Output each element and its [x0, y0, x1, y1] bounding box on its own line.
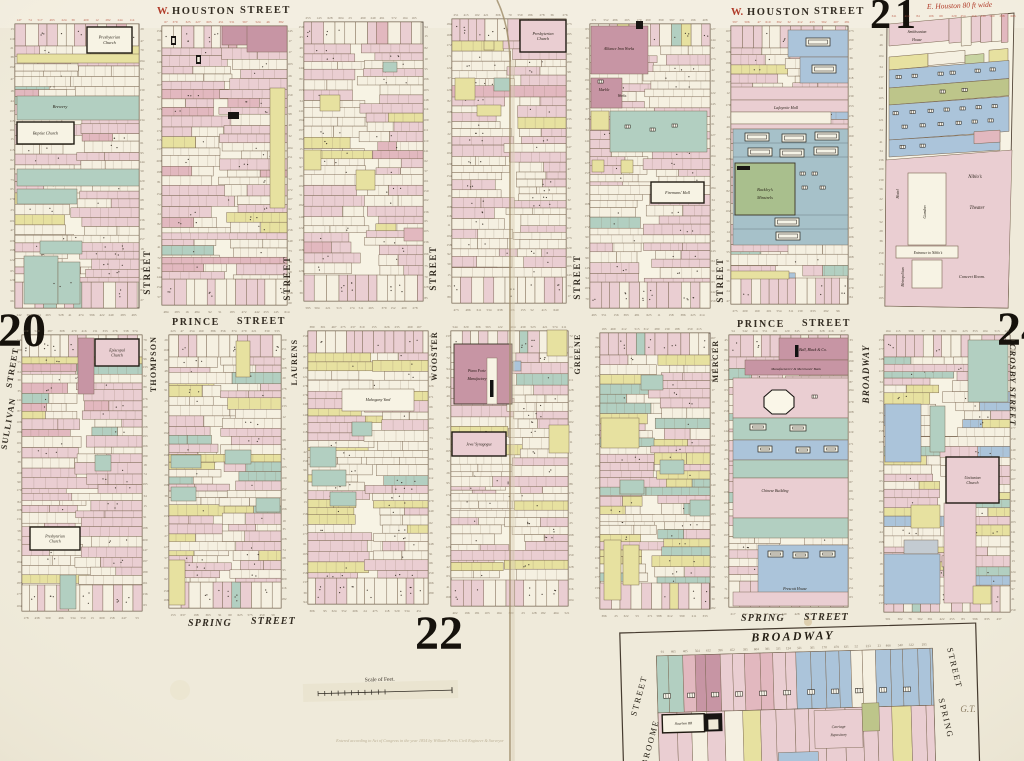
svg-text:189: 189 [429, 591, 434, 595]
svg-text:312: 312 [644, 327, 649, 331]
svg-text:21: 21 [870, 0, 920, 38]
svg-text:184: 184 [447, 22, 452, 26]
svg-text:91: 91 [661, 650, 665, 654]
svg-text:195: 195 [567, 32, 572, 36]
svg-text:198: 198 [194, 613, 199, 617]
svg-text:108: 108 [879, 440, 884, 444]
svg-text:187: 187 [446, 554, 451, 558]
svg-text:152: 152 [282, 487, 287, 491]
svg-text:143: 143 [567, 273, 572, 277]
svg-text:66: 66 [429, 561, 433, 565]
svg-text:106: 106 [429, 457, 434, 461]
svg-text:103: 103 [567, 41, 572, 45]
svg-text:106: 106 [10, 239, 15, 243]
svg-text:62: 62 [288, 207, 292, 211]
svg-text:41: 41 [879, 140, 883, 144]
svg-text:150: 150 [724, 409, 729, 413]
svg-text:68: 68 [164, 358, 168, 362]
svg-text:98: 98 [567, 70, 571, 74]
svg-text:635: 635 [985, 617, 990, 621]
svg-text:156: 156 [614, 313, 619, 317]
svg-text:55: 55 [726, 250, 730, 254]
svg-text:102: 102 [849, 267, 854, 271]
svg-text:181: 181 [475, 611, 480, 615]
svg-text:155: 155 [521, 308, 526, 312]
svg-text:152: 152 [303, 344, 308, 348]
svg-text:11: 11 [849, 143, 853, 147]
svg-text:35: 35 [17, 389, 21, 393]
svg-text:115: 115 [849, 546, 854, 550]
svg-text:78: 78 [595, 336, 599, 340]
svg-text:559: 559 [518, 13, 523, 17]
svg-text:253: 253 [264, 310, 269, 314]
svg-text:122: 122 [711, 91, 716, 95]
svg-text:111: 111 [569, 378, 574, 382]
svg-text:171: 171 [429, 395, 434, 399]
svg-text:39: 39 [303, 591, 307, 595]
svg-text:16: 16 [585, 87, 589, 91]
svg-text:159: 159 [1011, 437, 1016, 441]
svg-text:151: 151 [879, 593, 884, 597]
svg-text:197: 197 [10, 109, 15, 113]
svg-text:190: 190 [164, 453, 169, 457]
svg-text:32: 32 [787, 20, 791, 24]
svg-text:103: 103 [288, 62, 293, 66]
svg-text:143: 143 [711, 249, 716, 253]
svg-text:60: 60 [711, 452, 715, 456]
svg-text:84: 84 [849, 295, 853, 299]
svg-text:105: 105 [879, 96, 884, 100]
svg-text:168: 168 [299, 248, 304, 252]
svg-text:19: 19 [282, 519, 286, 523]
svg-text:118: 118 [585, 117, 590, 121]
svg-text:39: 39 [71, 18, 75, 22]
svg-text:102: 102 [299, 184, 304, 188]
svg-text:STREET: STREET [240, 5, 291, 16]
svg-text:76: 76 [908, 617, 912, 621]
svg-text:95: 95 [323, 609, 327, 613]
svg-text:501: 501 [886, 617, 891, 621]
svg-text:105: 105 [567, 264, 572, 268]
svg-text:135: 135 [567, 117, 572, 121]
svg-text:38: 38 [429, 344, 433, 348]
svg-text:36: 36 [849, 56, 853, 60]
svg-text:265: 265 [625, 18, 630, 22]
svg-text:528: 528 [59, 313, 64, 317]
svg-text:186: 186 [528, 13, 533, 17]
svg-text:195: 195 [595, 345, 600, 349]
svg-text:151: 151 [282, 347, 287, 351]
svg-text:74: 74 [28, 18, 32, 22]
svg-text:15: 15 [424, 34, 428, 38]
svg-text:BROADWAY: BROADWAY [750, 628, 835, 644]
svg-text:92: 92 [447, 252, 451, 256]
svg-text:475: 475 [373, 609, 378, 613]
svg-text:70: 70 [595, 414, 599, 418]
svg-text:130: 130 [665, 327, 670, 331]
svg-text:158: 158 [669, 313, 674, 317]
svg-text:85: 85 [849, 244, 853, 248]
svg-text:46: 46 [724, 448, 728, 452]
svg-text:55: 55 [569, 472, 573, 476]
svg-text:13: 13 [10, 27, 14, 31]
svg-text:68: 68 [282, 556, 286, 560]
svg-text:28: 28 [299, 174, 303, 178]
svg-text:21: 21 [17, 549, 21, 553]
svg-text:100: 100 [282, 338, 287, 342]
svg-text:68: 68 [140, 258, 144, 262]
svg-text:199: 199 [849, 359, 854, 363]
svg-text:11: 11 [585, 57, 589, 61]
svg-text:136: 136 [299, 238, 304, 242]
svg-text:108: 108 [282, 537, 287, 541]
svg-text:192: 192 [711, 358, 716, 362]
svg-text:421: 421 [484, 13, 489, 17]
svg-text:65: 65 [726, 200, 730, 204]
svg-text:158: 158 [288, 291, 293, 295]
svg-text:544: 544 [453, 325, 458, 329]
svg-text:Theater: Theater [970, 206, 985, 211]
svg-text:75: 75 [585, 67, 589, 71]
svg-text:139: 139 [798, 309, 803, 313]
svg-text:176: 176 [849, 114, 854, 118]
svg-text:117: 117 [567, 226, 572, 230]
svg-text:177: 177 [595, 575, 600, 579]
svg-text:542: 542 [743, 329, 748, 333]
svg-text:89: 89 [140, 207, 144, 211]
svg-text:76: 76 [711, 422, 715, 426]
svg-text:82: 82 [447, 99, 451, 103]
svg-text:614: 614 [285, 310, 290, 314]
svg-text:95: 95 [140, 151, 144, 155]
svg-text:120: 120 [447, 162, 452, 166]
svg-text:134: 134 [724, 358, 729, 362]
svg-text:94: 94 [424, 25, 428, 29]
svg-text:44: 44 [164, 410, 168, 414]
svg-text:552: 552 [604, 18, 609, 22]
svg-text:68: 68 [282, 438, 286, 442]
svg-text:85: 85 [164, 421, 168, 425]
svg-text:21: 21 [10, 46, 14, 50]
svg-text:141: 141 [1011, 530, 1016, 534]
svg-text:24: 24 [140, 77, 144, 81]
svg-text:65: 65 [303, 422, 307, 426]
svg-text:15: 15 [10, 137, 14, 141]
svg-text:486: 486 [466, 308, 471, 312]
svg-text:136: 136 [879, 158, 884, 162]
svg-text:132: 132 [1011, 366, 1016, 370]
svg-text:107: 107 [726, 29, 731, 33]
svg-text:83: 83 [961, 617, 965, 621]
svg-text:254: 254 [190, 329, 195, 333]
svg-text:Baptist Church: Baptist Church [33, 130, 58, 135]
svg-text:109: 109 [879, 167, 884, 171]
svg-text:Church: Church [103, 40, 115, 45]
svg-text:155: 155 [372, 325, 377, 329]
svg-text:178: 178 [282, 387, 287, 391]
svg-text:Entered according to Act of Co: Entered according to Act of Congress in … [335, 738, 504, 743]
svg-text:465: 465 [671, 649, 676, 653]
svg-text:320: 320 [464, 325, 469, 329]
svg-text:595: 595 [306, 306, 311, 310]
svg-text:216: 216 [829, 329, 834, 333]
svg-text:141: 141 [424, 149, 429, 153]
svg-text:34: 34 [585, 128, 589, 132]
svg-text:13: 13 [1011, 559, 1015, 563]
svg-text:597: 597 [733, 20, 738, 24]
svg-text:98: 98 [595, 385, 599, 389]
svg-text:48: 48 [164, 369, 168, 373]
svg-text:22: 22 [711, 208, 715, 212]
svg-text:452: 452 [743, 612, 748, 616]
svg-text:16: 16 [585, 36, 589, 40]
svg-text:198: 198 [1011, 395, 1016, 399]
svg-text:524: 524 [256, 20, 261, 24]
svg-text:176: 176 [569, 491, 574, 495]
svg-text:73: 73 [429, 436, 433, 440]
svg-text:173: 173 [567, 236, 572, 240]
svg-text:137: 137 [879, 601, 884, 605]
svg-text:147: 147 [17, 18, 22, 22]
svg-text:466: 466 [886, 643, 891, 647]
svg-text:34: 34 [303, 479, 307, 483]
svg-text:237: 237 [351, 325, 356, 329]
svg-text:119: 119 [1011, 499, 1016, 503]
svg-text:42: 42 [726, 220, 730, 224]
svg-text:256: 256 [972, 14, 977, 18]
svg-text:564: 564 [695, 649, 700, 653]
svg-text:81: 81 [1011, 540, 1015, 544]
svg-text:35: 35 [446, 404, 450, 408]
svg-text:Carriage: Carriage [831, 725, 845, 729]
svg-text:393: 393 [624, 313, 629, 317]
svg-text:17: 17 [569, 501, 573, 505]
svg-text:Garden: Garden [922, 205, 927, 219]
svg-text:133: 133 [595, 586, 600, 590]
svg-text:150: 150 [879, 107, 884, 111]
svg-text:158: 158 [879, 429, 884, 433]
svg-text:105: 105 [429, 426, 434, 430]
svg-text:93: 93 [299, 156, 303, 160]
svg-text:195: 195 [879, 296, 884, 300]
svg-text:181: 181 [879, 499, 884, 503]
svg-text:515: 515 [635, 327, 640, 331]
svg-text:132: 132 [711, 565, 716, 569]
svg-text:57: 57 [424, 169, 428, 173]
svg-text:223: 223 [963, 329, 968, 333]
svg-text:422: 422 [100, 313, 105, 317]
svg-text:Buckley’s: Buckley’s [757, 187, 773, 192]
svg-text:137: 137 [303, 580, 308, 584]
svg-text:75: 75 [726, 146, 730, 150]
svg-text:101: 101 [17, 441, 22, 445]
svg-text:Scale of Feet.: Scale of Feet. [365, 676, 396, 684]
svg-text:177: 177 [303, 532, 308, 536]
svg-text:73: 73 [711, 533, 715, 537]
svg-text:330: 330 [265, 329, 270, 333]
svg-text:145: 145 [711, 102, 716, 106]
svg-text:51: 51 [299, 193, 303, 197]
svg-text:402: 402 [453, 611, 458, 615]
svg-text:640: 640 [554, 308, 559, 312]
svg-text:386: 386 [211, 329, 216, 333]
svg-text:91: 91 [157, 266, 161, 270]
svg-text:HOUSTON: HOUSTON [747, 7, 811, 18]
svg-text:32: 32 [288, 134, 292, 138]
svg-text:114: 114 [130, 18, 135, 22]
svg-text:65: 65 [1011, 549, 1015, 553]
svg-text:438: 438 [35, 616, 40, 620]
svg-text:200: 200 [282, 577, 287, 581]
svg-text:109: 109 [711, 523, 716, 527]
svg-text:49: 49 [711, 544, 715, 548]
svg-text:10: 10 [595, 395, 599, 399]
svg-text:190: 190 [849, 277, 854, 281]
svg-text:496: 496 [59, 616, 64, 620]
svg-text:34: 34 [879, 273, 883, 277]
svg-text:29: 29 [879, 229, 883, 233]
svg-text:157: 157 [140, 237, 145, 241]
svg-text:238: 238 [1000, 14, 1005, 18]
svg-text:97: 97 [849, 165, 853, 169]
svg-text:Haarlem RR: Haarlem RR [673, 721, 693, 726]
svg-text:103: 103 [1011, 520, 1016, 524]
svg-text:68: 68 [140, 198, 144, 202]
svg-text:231: 231 [680, 18, 685, 22]
svg-text:39: 39 [299, 291, 303, 295]
svg-text:408: 408 [703, 18, 708, 22]
svg-text:56: 56 [879, 521, 883, 525]
svg-text:192: 192 [164, 431, 169, 435]
svg-text:106: 106 [1011, 386, 1016, 390]
svg-text:162: 162 [424, 198, 429, 202]
svg-text:House: House [911, 38, 922, 42]
svg-text:65: 65 [10, 187, 14, 191]
svg-text:34: 34 [143, 494, 147, 498]
svg-text:604: 604 [952, 329, 957, 333]
svg-text:11: 11 [657, 313, 661, 317]
svg-text:395: 395 [743, 647, 748, 651]
svg-text:164: 164 [886, 329, 891, 333]
svg-text:49: 49 [299, 46, 303, 50]
svg-text:46: 46 [595, 496, 599, 500]
svg-text:47: 47 [567, 167, 571, 171]
svg-text:54: 54 [37, 313, 41, 317]
svg-text:392: 392 [777, 20, 782, 24]
svg-text:STREET: STREET [802, 318, 851, 329]
svg-text:20: 20 [1011, 338, 1015, 342]
svg-text:116: 116 [282, 586, 287, 590]
svg-text:12: 12 [282, 415, 286, 419]
svg-text:195: 195 [143, 482, 148, 486]
svg-text:22: 22 [429, 364, 433, 368]
svg-text:124: 124 [711, 555, 716, 559]
svg-text:164: 164 [429, 417, 434, 421]
svg-text:531: 531 [230, 20, 235, 24]
svg-text:46: 46 [726, 239, 730, 243]
svg-text:97: 97 [1011, 587, 1015, 591]
svg-text:84: 84 [916, 14, 920, 18]
svg-text:80: 80 [711, 79, 715, 83]
svg-text:53: 53 [724, 521, 728, 525]
svg-text:41: 41 [68, 313, 72, 317]
svg-text:Episcopal: Episcopal [108, 348, 125, 352]
svg-text:176: 176 [143, 397, 148, 401]
svg-text:59: 59 [849, 508, 853, 512]
svg-text:119: 119 [595, 556, 600, 560]
svg-text:188: 188 [164, 483, 169, 487]
svg-text:37: 37 [585, 107, 589, 111]
svg-text:250: 250 [688, 327, 693, 331]
svg-text:62: 62 [429, 521, 433, 525]
svg-text:90: 90 [585, 235, 589, 239]
svg-text:109: 109 [424, 118, 429, 122]
svg-text:89: 89 [143, 385, 147, 389]
svg-text:25: 25 [288, 166, 292, 170]
svg-text:52: 52 [855, 644, 859, 648]
svg-text:149: 149 [849, 67, 854, 71]
svg-text:38: 38 [17, 460, 21, 464]
svg-text:166: 166 [164, 598, 169, 602]
svg-text:87: 87 [17, 409, 21, 413]
svg-text:437: 437 [997, 617, 1002, 621]
svg-text:139: 139 [303, 366, 308, 370]
svg-text:104: 104 [983, 329, 988, 333]
svg-text:118: 118 [303, 430, 308, 434]
svg-text:84: 84 [17, 370, 21, 374]
svg-text:102: 102 [711, 443, 716, 447]
svg-text:69: 69 [569, 355, 573, 359]
svg-text:42: 42 [446, 565, 450, 569]
svg-text:90: 90 [17, 480, 21, 484]
svg-text:442: 442 [255, 310, 260, 314]
svg-text:178: 178 [822, 645, 827, 649]
svg-text:176: 176 [879, 262, 884, 266]
svg-text:154: 154 [1011, 468, 1016, 472]
svg-text:Presbyterian: Presbyterian [98, 35, 120, 40]
svg-text:604: 604 [754, 647, 759, 651]
svg-text:439: 439 [521, 325, 526, 329]
svg-text:33: 33 [849, 338, 853, 342]
svg-text:148: 148 [879, 357, 884, 361]
svg-text:151: 151 [569, 345, 574, 349]
svg-text:197: 197 [724, 378, 729, 382]
svg-text:223: 223 [866, 644, 871, 648]
svg-text:47: 47 [180, 329, 184, 333]
svg-text:103: 103 [10, 167, 15, 171]
svg-text:184: 184 [17, 560, 22, 564]
svg-text:215: 215 [697, 327, 702, 331]
svg-text:127: 127 [711, 27, 716, 31]
svg-text:196: 196 [424, 252, 429, 256]
svg-text:51: 51 [218, 310, 222, 314]
svg-text:145: 145 [274, 310, 279, 314]
svg-text:59: 59 [271, 613, 275, 617]
svg-text:96: 96 [143, 357, 147, 361]
svg-text:198: 198 [429, 375, 434, 379]
svg-text:24: 24 [157, 212, 161, 216]
svg-text:73: 73 [10, 178, 14, 182]
svg-text:126: 126 [429, 384, 434, 388]
svg-text:144: 144 [140, 160, 145, 164]
svg-text:596: 596 [909, 329, 914, 333]
svg-text:103: 103 [446, 345, 451, 349]
svg-text:90: 90 [282, 427, 286, 431]
svg-text:18: 18 [879, 562, 883, 566]
svg-text:127: 127 [879, 285, 884, 289]
svg-text:67: 67 [849, 47, 853, 51]
svg-text:400: 400 [402, 306, 407, 310]
